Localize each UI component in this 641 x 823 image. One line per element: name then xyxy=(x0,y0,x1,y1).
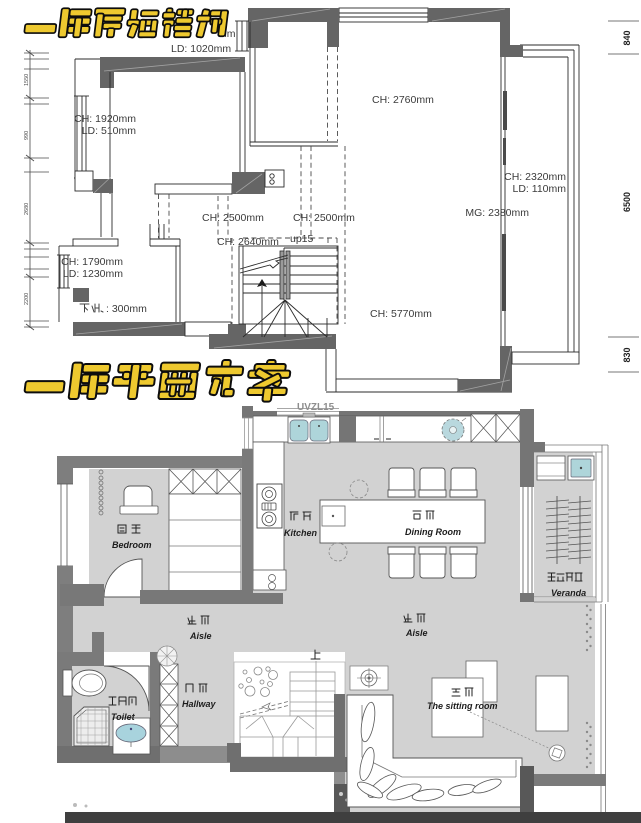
svg-text:Aisle: Aisle xyxy=(405,628,428,638)
svg-text:LD: 510mm: LD: 510mm xyxy=(82,125,137,137)
svg-text:Kitchen: Kitchen xyxy=(284,528,318,538)
svg-text:Aisle: Aisle xyxy=(189,631,212,641)
svg-text:2200: 2200 xyxy=(24,293,30,305)
svg-text:830: 830 xyxy=(622,347,632,362)
svg-text:LD: 1020mm: LD: 1020mm xyxy=(171,43,231,55)
svg-text:Toilet: Toilet xyxy=(111,712,136,722)
svg-text:MG: 2380mm: MG: 2380mm xyxy=(465,207,529,219)
svg-text:UVZL15: UVZL15 xyxy=(297,402,335,413)
svg-text:CH: 1920mm: CH: 1920mm xyxy=(74,113,136,125)
svg-text:CH: 2320mm: CH: 2320mm xyxy=(504,171,566,183)
svg-text:Bedroom: Bedroom xyxy=(112,540,152,550)
svg-text:Hallway: Hallway xyxy=(182,699,217,709)
svg-text:CH: 1790mm: CH: 1790mm xyxy=(61,256,123,268)
svg-text:CH: 5770mm: CH: 5770mm xyxy=(370,308,432,320)
svg-text:1550: 1550 xyxy=(24,74,30,86)
svg-text:CH: 2500mm: CH: 2500mm xyxy=(293,212,355,224)
svg-text:LD: 1230mm: LD: 1230mm xyxy=(63,268,123,280)
svg-text:: 300mm: : 300mm xyxy=(106,303,147,315)
svg-text:CH: 2640mm: CH: 2640mm xyxy=(217,236,279,248)
svg-text:CH: 2760mm: CH: 2760mm xyxy=(372,94,434,106)
svg-text:840: 840 xyxy=(622,30,632,45)
svg-text:6500: 6500 xyxy=(622,192,632,212)
svg-text:CH: 2500mm: CH: 2500mm xyxy=(202,212,264,224)
svg-text:up15: up15 xyxy=(290,233,314,245)
svg-text:The sitting room: The sitting room xyxy=(427,701,498,711)
svg-text:990: 990 xyxy=(24,131,30,140)
svg-text:Veranda: Veranda xyxy=(551,588,586,598)
svg-text:Dining Room: Dining Room xyxy=(405,527,461,537)
svg-text:LD: 110mm: LD: 110mm xyxy=(513,183,567,195)
svg-text:2680: 2680 xyxy=(24,203,30,215)
